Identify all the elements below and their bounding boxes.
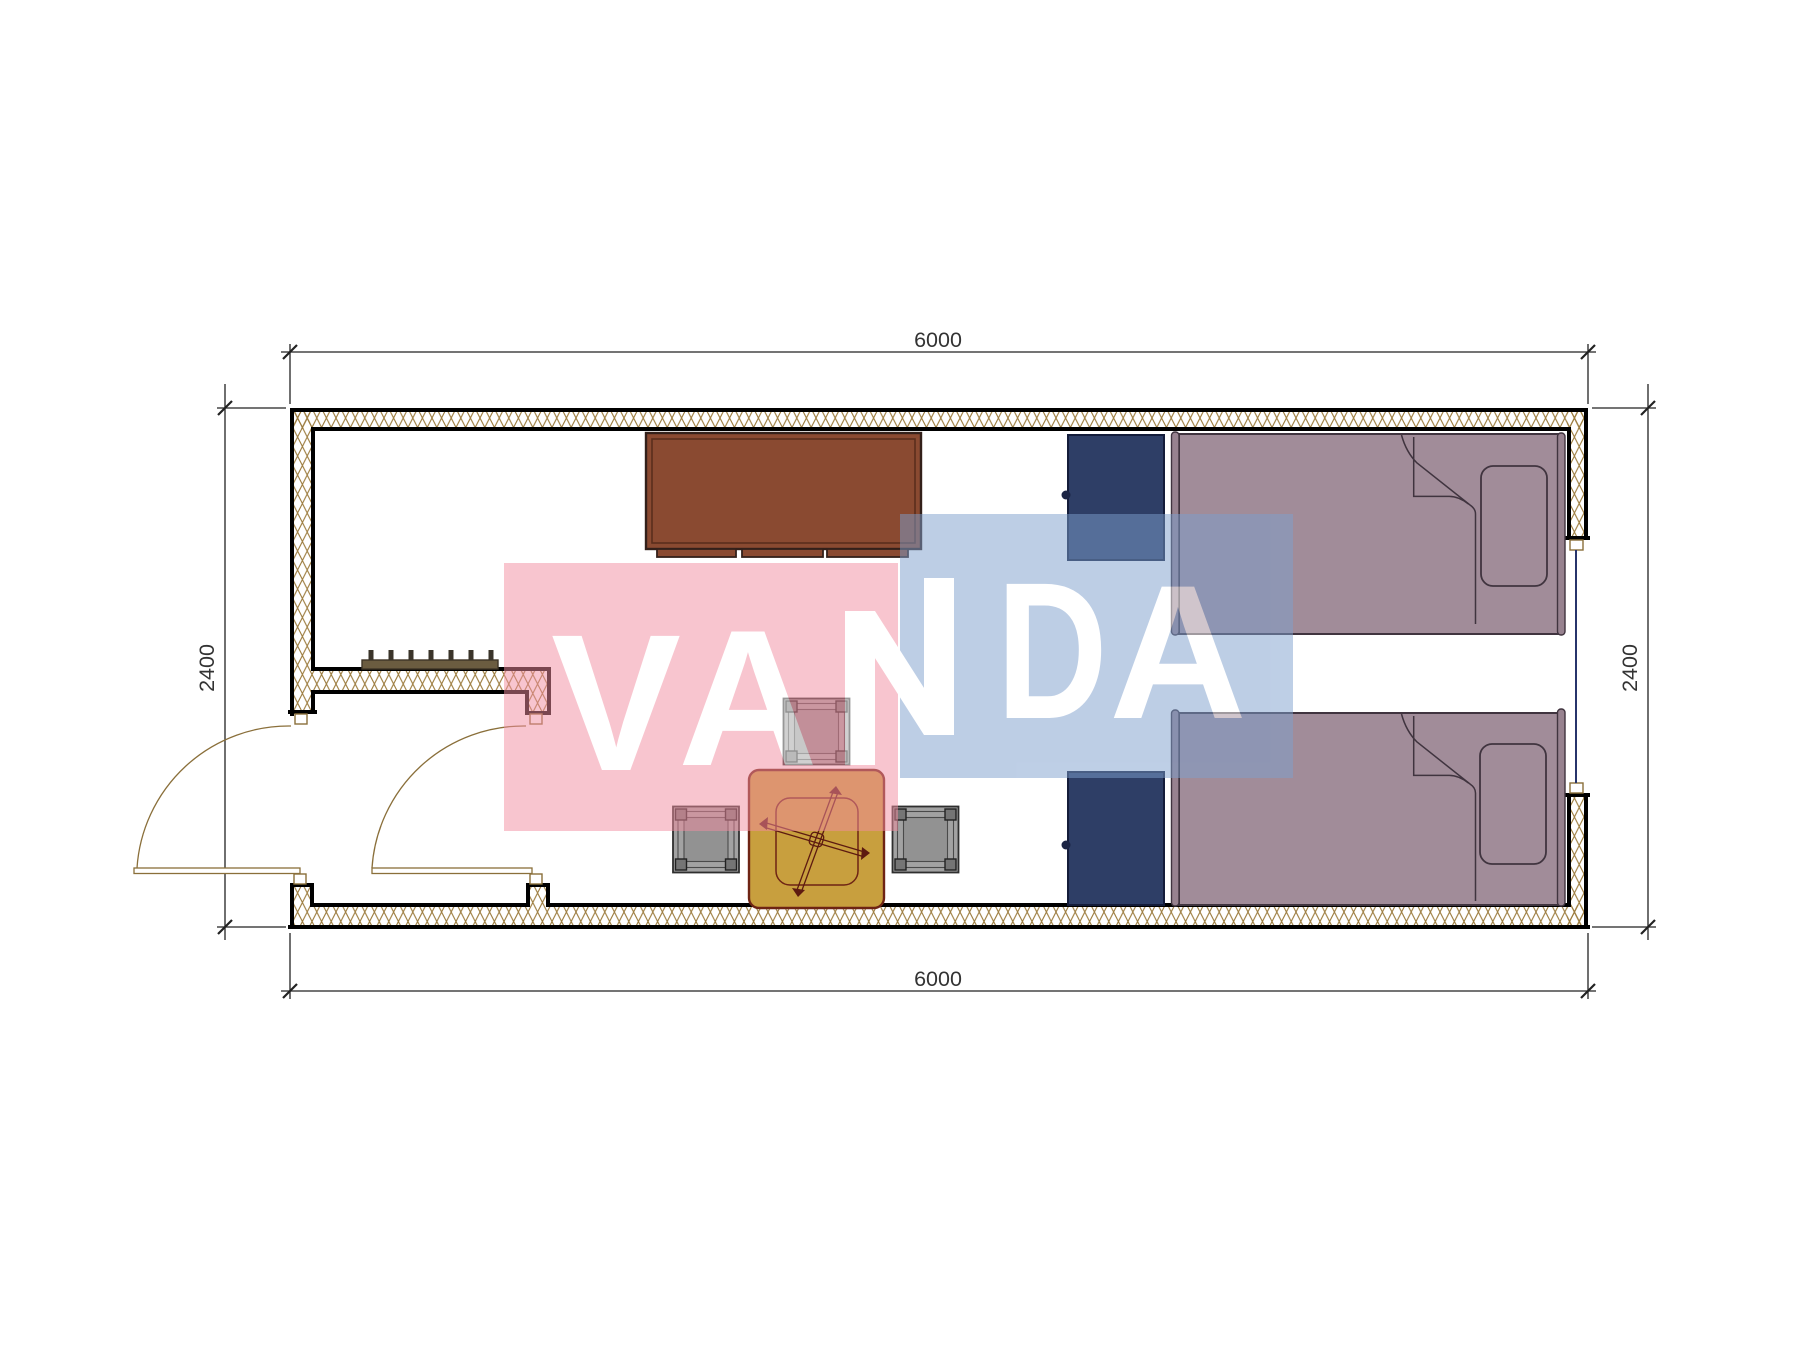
svg-text:A: A	[678, 590, 818, 807]
svg-text:D: D	[996, 543, 1107, 761]
svg-text:V: V	[551, 594, 681, 812]
svg-text:6000: 6000	[914, 967, 962, 991]
svg-text:6000: 6000	[914, 328, 962, 352]
svg-text:A: A	[1109, 546, 1247, 759]
svg-text:2400: 2400	[195, 644, 219, 692]
svg-text:2400: 2400	[1618, 644, 1642, 692]
